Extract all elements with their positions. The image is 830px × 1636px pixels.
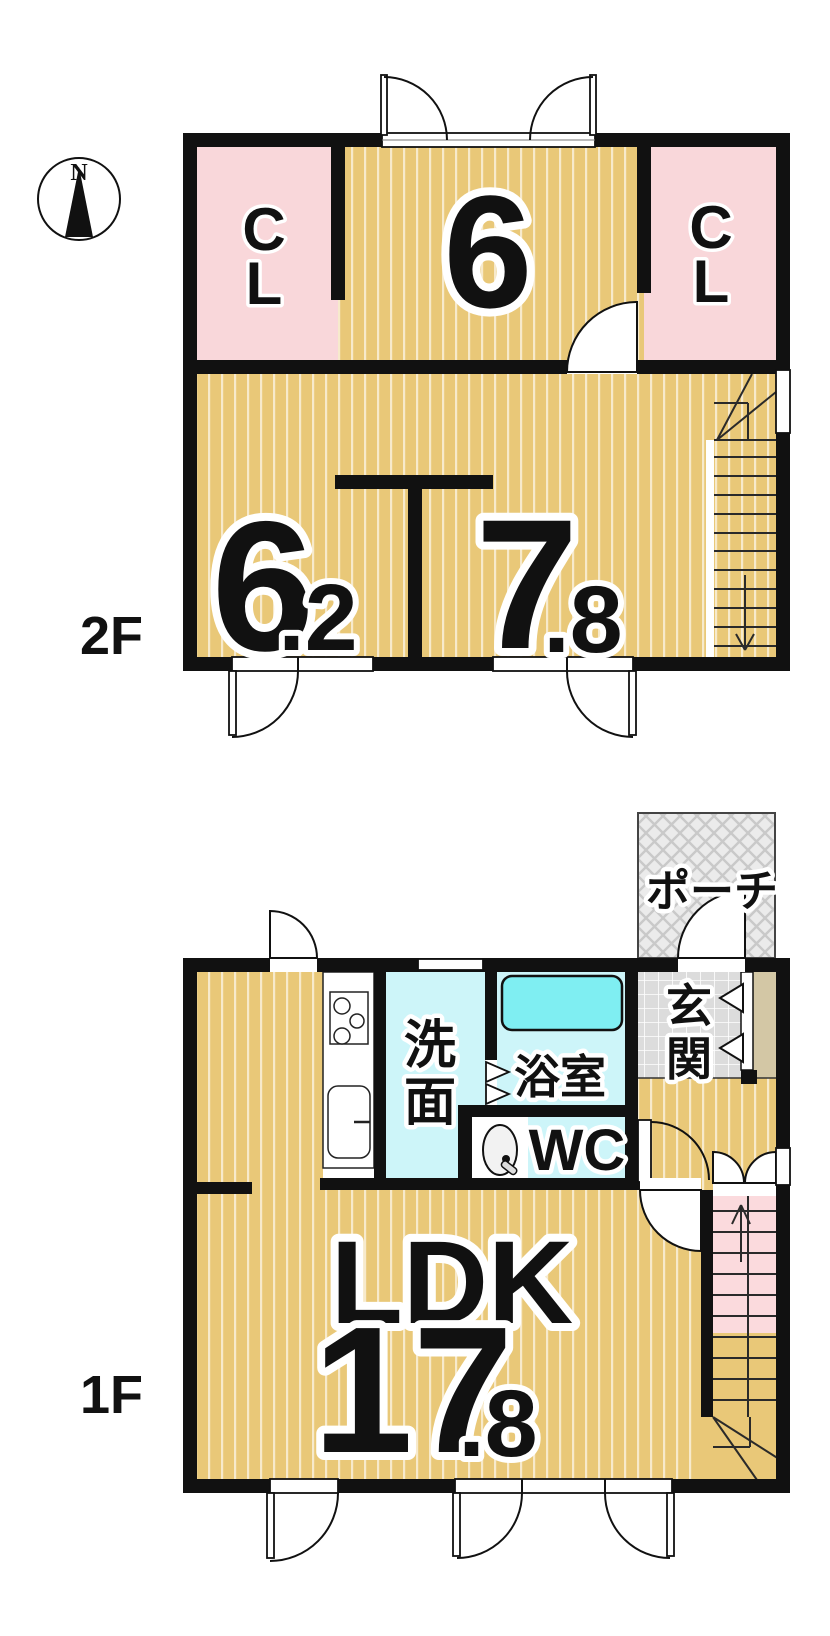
door-leaf xyxy=(453,1493,460,1556)
2f-closet-right-label-l: L xyxy=(693,248,730,315)
casement-leaf xyxy=(590,75,596,135)
door-leaf xyxy=(267,1493,274,1558)
1f-entrance-door-opening xyxy=(678,958,745,972)
1f-stairs-upper xyxy=(713,1196,776,1333)
stair-entry-opening xyxy=(713,1183,776,1196)
toilet-icon xyxy=(483,1125,518,1176)
washroom-label-char1: 洗 xyxy=(404,1017,456,1075)
washroom-label-char2: 面 xyxy=(404,1074,456,1132)
compass-rose: N xyxy=(38,158,120,240)
2f-closet-right-wall xyxy=(637,147,651,293)
ldk-wall-stub xyxy=(197,1182,252,1194)
2f-bedroom-right-area-fraction: .8 xyxy=(543,567,622,673)
1f-stairs-lower xyxy=(713,1333,776,1417)
2f-stair-window xyxy=(776,370,790,433)
2f-closet-left-wall xyxy=(331,147,345,300)
bathroom-label: 浴室 xyxy=(514,1051,606,1103)
door-swing-arc xyxy=(605,1493,670,1558)
2f-closet-left-label-l: L xyxy=(246,250,283,317)
water-hall-wall xyxy=(625,972,638,1190)
kitchen-counter xyxy=(323,972,374,1168)
door-leaf xyxy=(667,1493,674,1556)
1f-stair-window xyxy=(776,1148,790,1185)
toilet-alcove-wall xyxy=(458,1105,472,1190)
2f-divider-wall xyxy=(183,360,790,374)
2f-bedroom-top-area: 6 xyxy=(444,162,533,341)
entrance-label-char2: 関 xyxy=(666,1033,712,1085)
1f-back-door-opening xyxy=(270,958,317,972)
2f-bedroom-left-area-fraction: .2 xyxy=(278,565,357,671)
casement-leaf xyxy=(381,75,387,135)
2f-floor-label: 2F xyxy=(80,606,143,666)
wc-label: WC xyxy=(529,1118,626,1183)
bathtub-icon xyxy=(502,976,622,1030)
floor-plan-page: N xyxy=(0,0,830,1631)
2f-partition-vertical xyxy=(408,489,422,657)
ldk-door-opening xyxy=(640,1178,701,1190)
entrance-wall-cap xyxy=(741,1070,757,1084)
floor-1f-plan: ポーチ 玄 関 洗 面 浴室 WC LDK 17 .8 1F xyxy=(80,813,790,1561)
porch-label: ポーチ xyxy=(646,867,778,916)
casement-swing-arc xyxy=(384,77,447,140)
stair-wall xyxy=(701,1190,713,1417)
2f-partition-horizontal xyxy=(335,475,493,489)
floor-plan-drawing: N xyxy=(0,0,830,1631)
casement-swing-arc xyxy=(530,77,593,140)
entrance-label-char1: 玄 xyxy=(666,980,712,1032)
wc-door-leaf xyxy=(638,1120,651,1182)
1f-back-door-swing xyxy=(270,911,317,958)
1f-washroom-window xyxy=(418,959,483,970)
kitchen-wall xyxy=(374,972,386,1178)
door-swing-arc xyxy=(270,1493,338,1561)
floor-2f-plan: C L C L 6 6 .2 7 .8 2F xyxy=(80,75,790,737)
washroom-bath-wall xyxy=(485,972,497,1060)
1f-floor-label: 1F xyxy=(80,1365,143,1425)
stair-side-strip xyxy=(706,440,714,657)
door-leaf xyxy=(629,671,636,735)
ldk-area-fraction: .8 xyxy=(458,1371,537,1477)
1f-kitchen-floor xyxy=(197,972,323,1190)
bath-wc-wall xyxy=(472,1105,638,1117)
1f-shoe-cabinet xyxy=(753,972,776,1078)
door-swing-arc xyxy=(457,1493,522,1558)
